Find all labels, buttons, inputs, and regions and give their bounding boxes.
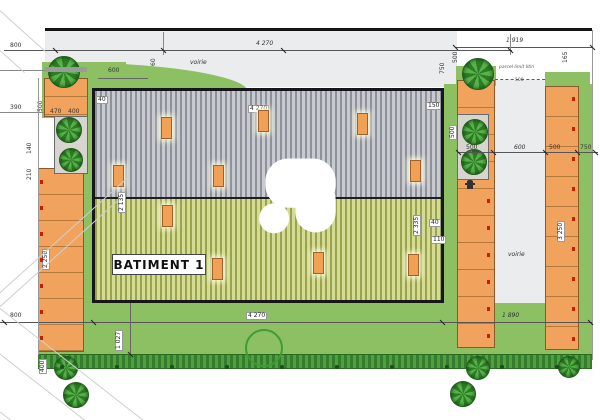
green-strip-building-right [444, 84, 458, 334]
dimension-label: 1 919 [506, 38, 523, 44]
building-door [408, 254, 419, 276]
tree-icon [56, 117, 82, 143]
dimension-label: 150 [426, 102, 441, 110]
dimension-label: 750 [580, 145, 591, 151]
dimension-label: 600 [514, 145, 525, 151]
space-number-mark [572, 97, 575, 101]
building-door [162, 205, 173, 227]
building-name-label: BATIMENT 1 [112, 254, 206, 275]
building-door [212, 258, 223, 280]
dimension-line [130, 303, 131, 355]
space-number-mark [487, 307, 490, 311]
dimension-label: 400 [68, 109, 79, 115]
dimension-label: 400 [39, 359, 47, 374]
dimension-label: 600 [108, 68, 119, 74]
dimension-label: 40 [429, 219, 441, 227]
dimension-label: 800 [10, 43, 21, 49]
dimension-label: 500 [449, 125, 457, 140]
space-number-mark [40, 206, 43, 210]
space-number-mark [572, 277, 575, 281]
dimension-label: 4 270 [256, 41, 273, 47]
tree-icon [63, 382, 89, 408]
dimension-label: 210 [27, 169, 33, 180]
space-number-mark [572, 307, 575, 311]
dimension-label: 60 [151, 58, 157, 66]
hedge-plant-dot [445, 365, 449, 369]
dimension-line [455, 47, 592, 48]
dimension-label: 390 [10, 105, 21, 111]
tree-icon [450, 381, 476, 407]
dimension-label: 40 [96, 96, 108, 104]
margin-hatch-line [0, 0, 47, 53]
space-number-mark [487, 226, 490, 230]
tree-icon [48, 56, 80, 88]
dimension-label: voirie [508, 252, 525, 258]
dimension-label: 750 [440, 63, 446, 74]
space-number-mark [487, 334, 490, 338]
dimension-line [0, 322, 592, 323]
building-door [410, 160, 421, 182]
dimension-label: 3 250 [557, 221, 565, 242]
building-door [258, 110, 269, 132]
dimension-label: 2 135 [118, 192, 126, 213]
dimension-label: parcel limit litin [499, 66, 534, 71]
tree-icon [466, 356, 490, 380]
dimension-label: 1 890 [502, 313, 519, 319]
space-number-mark [572, 337, 575, 341]
dimension-line [45, 28, 592, 31]
dimension-label: 2 335 [413, 215, 421, 236]
space-number-mark [487, 253, 490, 257]
space-number-mark [487, 280, 490, 284]
hedge-plant-dot [390, 365, 394, 369]
space-number-mark [487, 199, 490, 203]
space-number-mark [40, 180, 43, 184]
dimension-line [98, 78, 148, 79]
dimension-line [45, 67, 87, 72]
space-number-mark [40, 232, 43, 236]
dimension-label: 1 027 [115, 330, 123, 351]
dimension-label: 4 270 [246, 312, 267, 320]
site-marker-icon [467, 180, 473, 189]
space-number-mark [572, 157, 575, 161]
hedge-plant-dot [335, 365, 339, 369]
tree-icon [462, 119, 488, 145]
space-number-mark [572, 247, 575, 251]
tree-icon [59, 148, 83, 172]
dimension-label: 500 [453, 52, 459, 63]
hedge-plant-dot [115, 365, 119, 369]
dimension-label: 470 [50, 109, 61, 115]
hedge-plant-dot [225, 365, 229, 369]
building-door [357, 113, 368, 135]
dimension-line [38, 78, 39, 355]
building-door [313, 252, 324, 274]
space-number-mark [40, 310, 43, 314]
hedge-bottom [38, 354, 592, 369]
hedge-plant-dot [60, 365, 64, 369]
watermark-logo-icon [253, 155, 341, 243]
space-number-mark [572, 127, 575, 131]
dimension-line [4, 50, 512, 51]
dimension-label: 500 [515, 79, 524, 84]
dimension-label: 165 [563, 52, 569, 63]
dimension-label: 500 [549, 145, 560, 151]
space-number-mark [40, 258, 43, 262]
space-number-mark [572, 217, 575, 221]
dimension-label: 140 [27, 143, 33, 154]
dimension-line [592, 30, 593, 360]
tree-icon [558, 356, 580, 378]
building-door [213, 165, 224, 187]
building-door [161, 117, 172, 139]
dimension-label: voirie [190, 60, 207, 66]
tree-icon [462, 58, 494, 90]
hedge-plant-dot [170, 365, 174, 369]
space-number-mark [572, 187, 575, 191]
building-name-text: BATIMENT 1 [113, 258, 204, 272]
site-plan: BATIMENT 1 8004 2701 919voirie6006039050… [0, 0, 600, 420]
space-number-mark [40, 284, 43, 288]
tree-outline-icon [245, 329, 283, 367]
space-number-mark [40, 336, 43, 340]
hedge-plant-dot [280, 365, 284, 369]
dimension-label: 110 [431, 236, 446, 244]
hedge-plant-dot [500, 365, 504, 369]
hedge-plant-dot [555, 365, 559, 369]
